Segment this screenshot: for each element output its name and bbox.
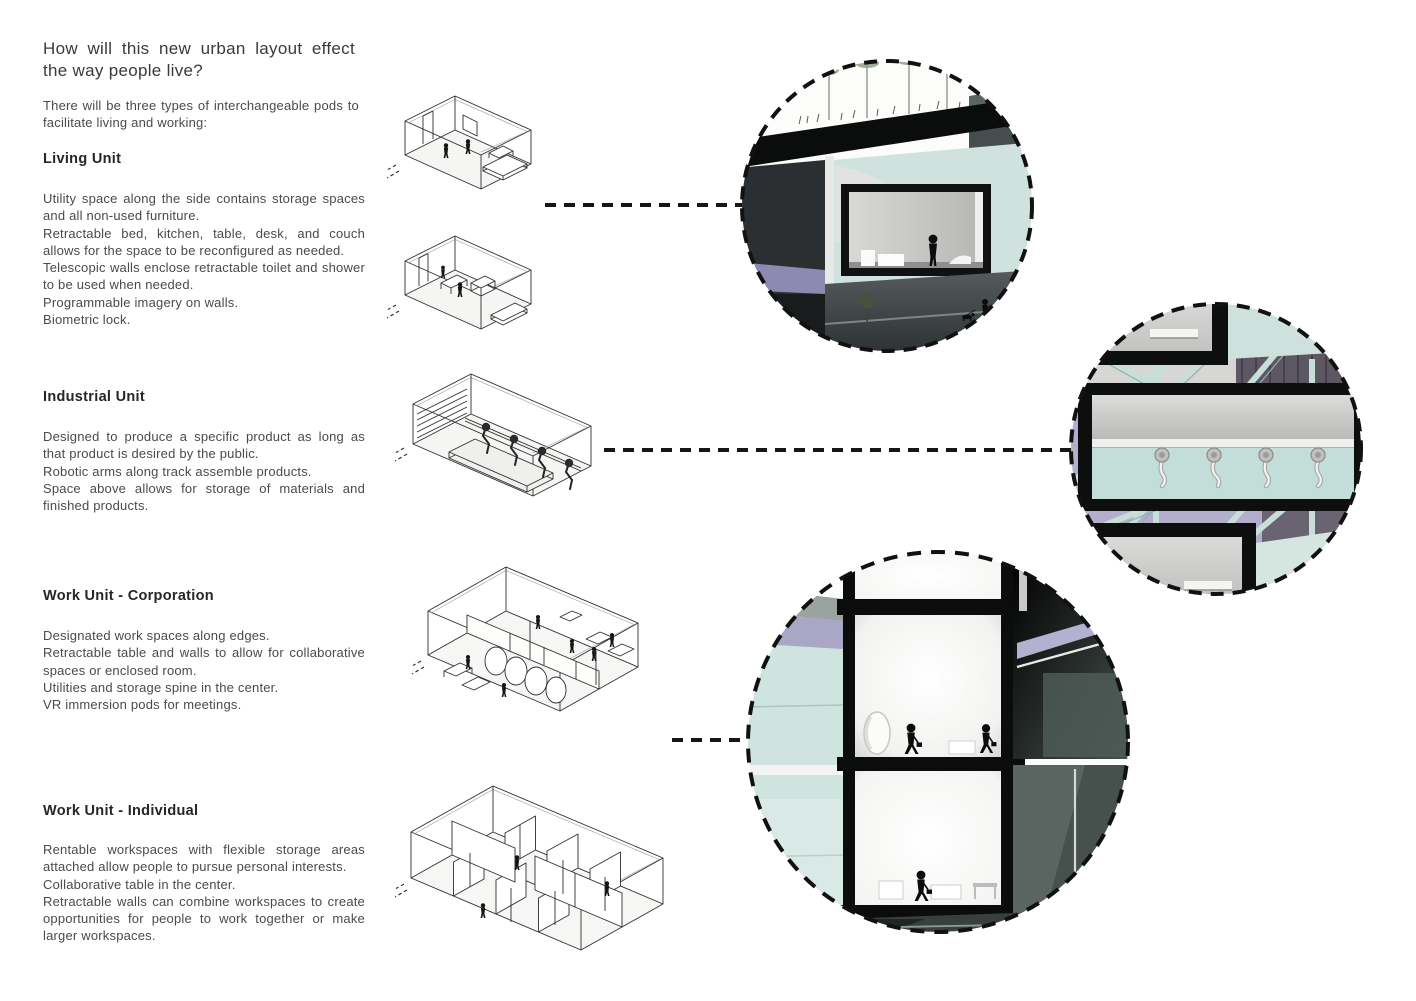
- section-body-living-unit: Utility space along the side contains st…: [43, 190, 365, 328]
- work-unit-corporation-pod-isometric: [410, 555, 655, 750]
- intro-paragraph: There will be three types of interchange…: [43, 97, 359, 132]
- section-body-work-unit-corporation: Designated work spaces along edges. Retr…: [43, 627, 365, 713]
- section-text-line: Designated work spaces along edges.: [43, 627, 365, 644]
- living-unit-render: [737, 56, 1037, 356]
- section-text-line: Collaborative table in the center.: [43, 876, 365, 893]
- section-text-line: Retractable bed, kitchen, table, desk, a…: [43, 225, 365, 260]
- section-text-line: Programmable imagery on walls.: [43, 294, 365, 311]
- section-text-line: Telescopic walls enclose retractable toi…: [43, 259, 365, 294]
- section-body-work-unit-individual: Rentable workspaces with flexible storag…: [43, 841, 365, 945]
- living-dashed-connector: [545, 203, 742, 207]
- section-text-line: Designed to produce a specific product a…: [43, 428, 365, 463]
- work-unit-individual-pod-isometric: [395, 770, 685, 970]
- section-text-line: Utilities and storage spine in the cente…: [43, 679, 365, 696]
- work-unit-render: [743, 547, 1133, 937]
- page-title: How will this new urban layout effect th…: [43, 38, 355, 81]
- section-text-line: Retractable table and walls to allow for…: [43, 644, 365, 679]
- section-text-line: Rentable workspaces with flexible storag…: [43, 841, 365, 876]
- section-text-line: Robotic arms along track assemble produc…: [43, 463, 365, 480]
- section-text-line: Utility space along the side contains st…: [43, 190, 365, 225]
- section-text-line: Retractable walls can combine workspaces…: [43, 893, 365, 945]
- section-text-line: Biometric lock.: [43, 311, 365, 328]
- living-unit-pod-a-isometric: [385, 95, 550, 210]
- work-dashed-connector: [672, 738, 748, 742]
- section-title-industrial-unit: Industrial Unit: [43, 389, 365, 405]
- industrial-dashed-connector: [604, 448, 1071, 452]
- industrial-unit-pod-isometric: [395, 370, 610, 530]
- section-title-living-unit: Living Unit: [43, 151, 365, 167]
- section-text-line: Space above allows for storage of materi…: [43, 480, 365, 515]
- presentation-board: How will this new urban layout effect th…: [0, 0, 1416, 1001]
- section-title-work-unit-individual: Work Unit - Individual: [43, 803, 365, 819]
- section-text-line: VR immersion pods for meetings.: [43, 696, 365, 713]
- section-body-industrial-unit: Designed to produce a specific product a…: [43, 428, 365, 514]
- living-unit-pod-b-isometric: [385, 235, 550, 350]
- section-title-work-unit-corporation: Work Unit - Corporation: [43, 588, 365, 604]
